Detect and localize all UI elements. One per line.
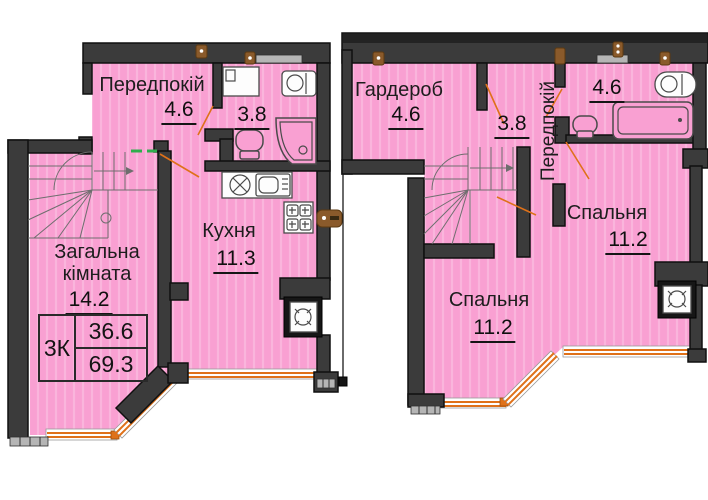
room-area-living-room: 14.2 [66, 288, 113, 315]
room-label-kitchen: Кухня [202, 221, 256, 242]
washing-machine-icon [223, 67, 259, 96]
apartment-summary-table: 3К 36.6 69.3 [38, 314, 148, 382]
washing-machine-icon [658, 281, 696, 318]
toilet-icon [573, 116, 597, 138]
gas-pipe-icon [317, 210, 342, 227]
room-label-bedroom-right: Спальня [567, 203, 647, 224]
stove-icon [284, 202, 313, 233]
room-area-wardrobe: 4.6 [388, 103, 423, 130]
washing-machine-icon [284, 297, 322, 337]
sink-icon [655, 72, 696, 97]
room-label-wardrobe: Гардероб [355, 80, 443, 101]
room-label-living-room: Загальна кімната [33, 241, 161, 285]
kitchen-counter-icon [222, 172, 292, 198]
room-label-hallway-f1: Передпокій [99, 75, 204, 96]
room-area-bedroom-right: 11.2 [605, 228, 650, 255]
room-label-corridor-f2: Передпокій [538, 81, 560, 181]
living-area-value: 36.6 [76, 316, 146, 349]
toilet-icon [236, 130, 263, 159]
room-area-bedroom-left: 11.2 [470, 316, 515, 343]
floor-plan-canvas: Передпокій 4.6 3.8 Кухня 11.3 Загальна к… [0, 0, 708, 500]
apartment-type: 3К [40, 316, 76, 380]
room-area-hallway-f1: 4.6 [161, 98, 196, 125]
room-area-kitchen: 11.3 [213, 247, 258, 274]
bathtub-icon [613, 102, 693, 139]
room-area-bathroom-f2: 4.6 [589, 76, 624, 103]
room-area-hall-f2: 3.8 [494, 112, 529, 139]
sink-icon [282, 71, 316, 96]
total-area-value: 69.3 [76, 349, 146, 380]
room-label-bedroom-left: Спальня [449, 290, 529, 311]
room-area-bathroom-f1: 3.8 [234, 103, 269, 130]
